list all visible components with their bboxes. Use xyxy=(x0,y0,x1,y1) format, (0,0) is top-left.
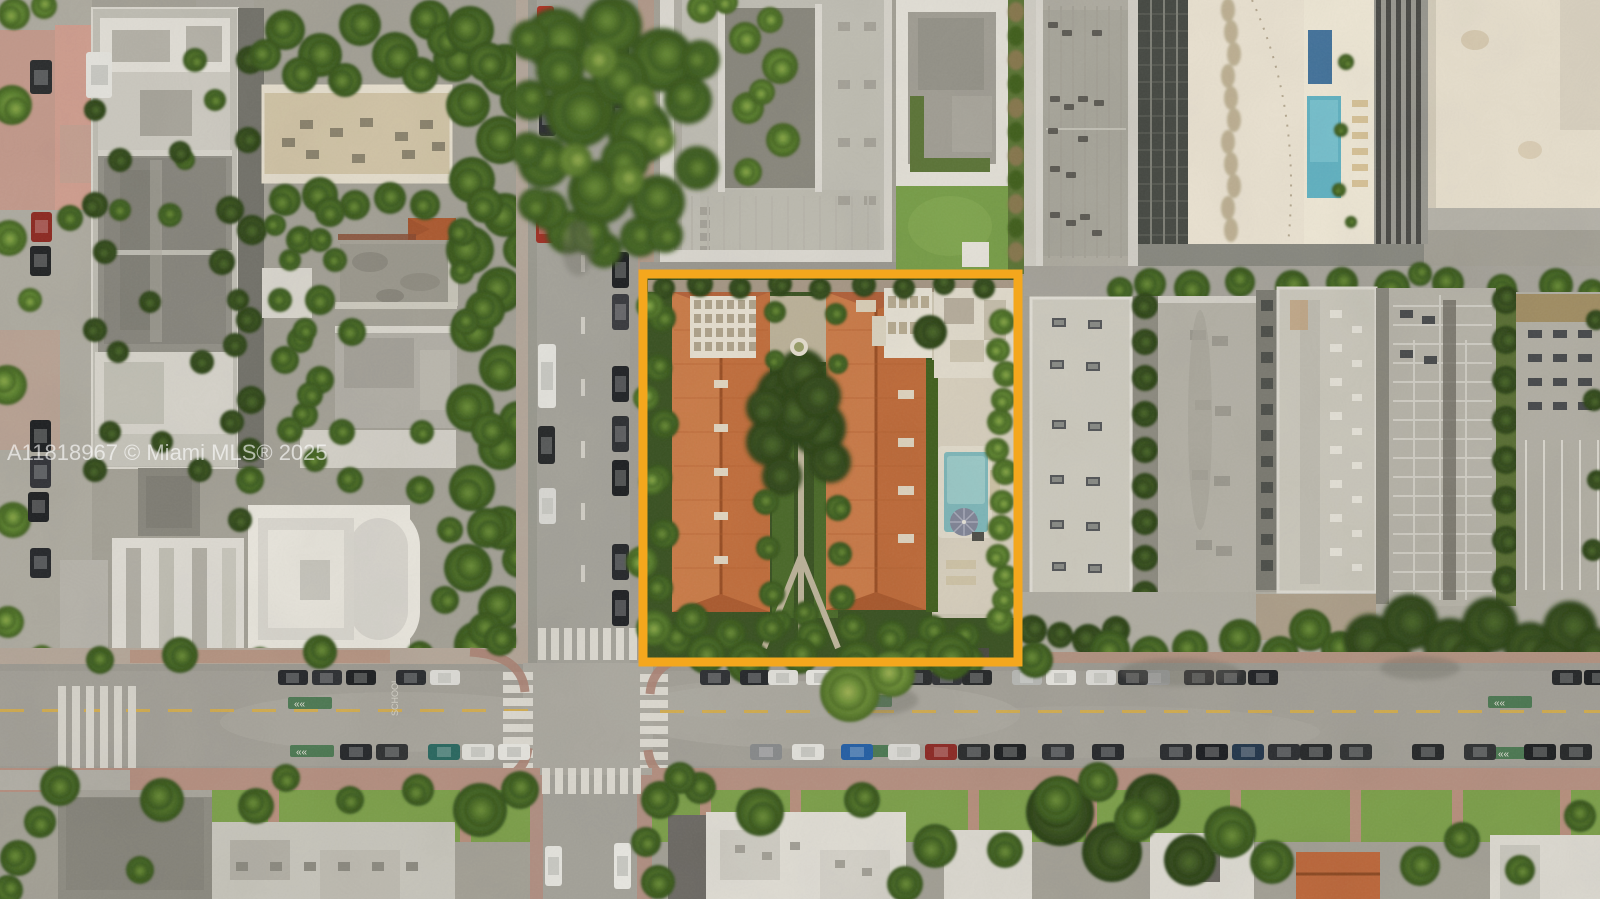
svg-text:A11818967 © Miami MLS® 2025: A11818967 © Miami MLS® 2025 xyxy=(7,440,328,465)
